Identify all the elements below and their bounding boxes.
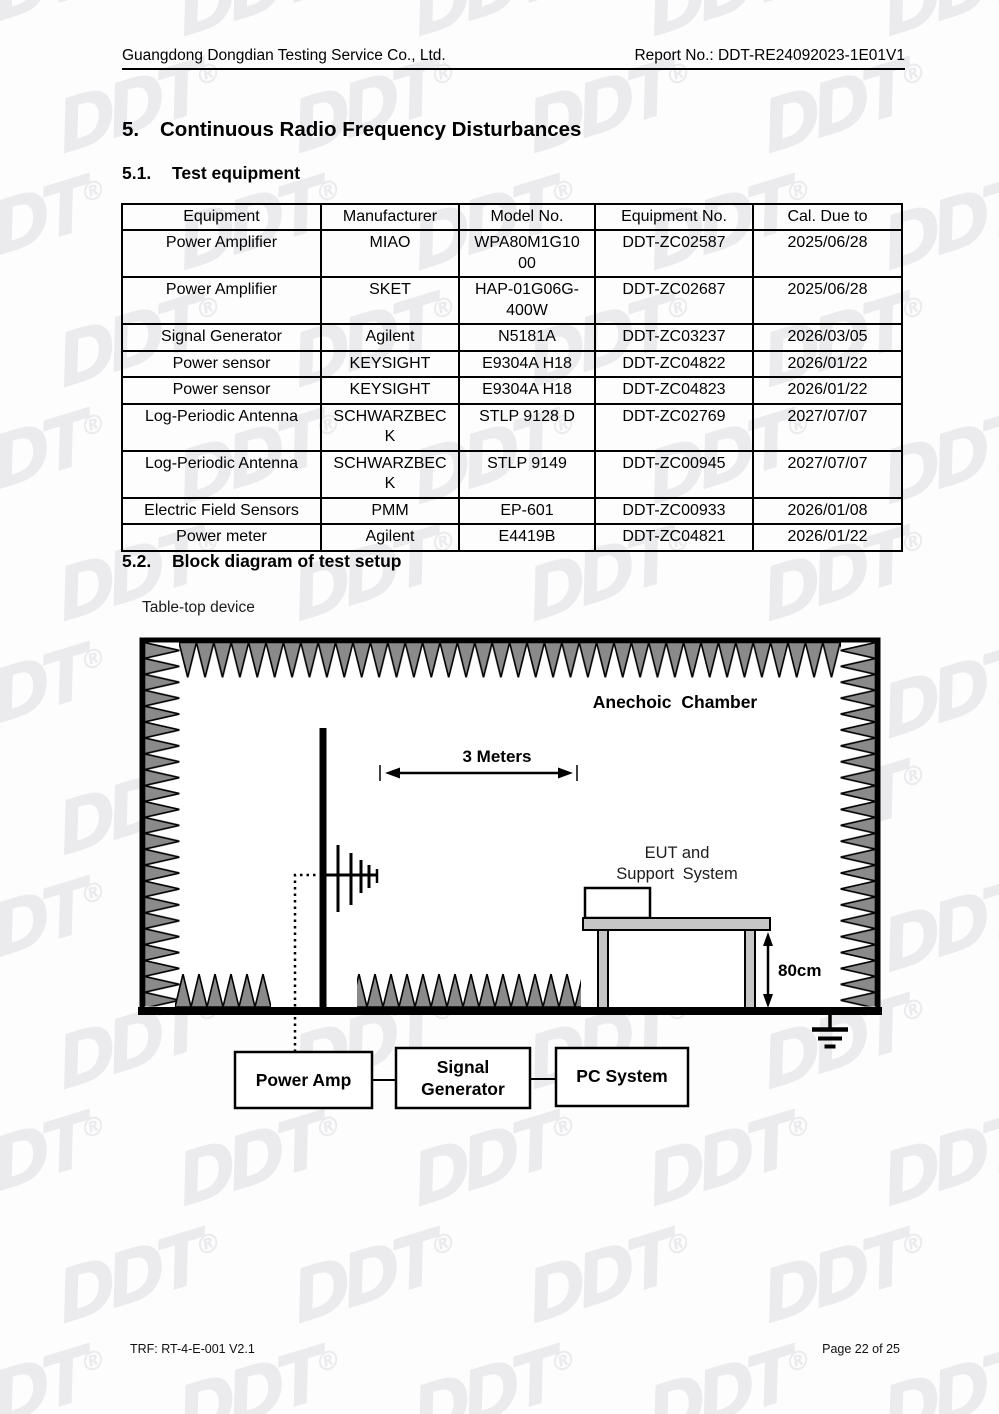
cell-cal-due: 2026/01/22 (753, 377, 902, 403)
section-5-2-title: Block diagram of test setup (172, 551, 402, 572)
col-header-equipment-no: Equipment No. (595, 204, 753, 230)
test-setup-diagram: Anechoic Chamber 3 Meters EUT and Suppor… (130, 636, 920, 1116)
ddt-watermark-logo: DDT® (0, 622, 114, 756)
cell-model: EP-601 (459, 498, 595, 524)
cell-equipment-no: DDT-ZC02769 (595, 404, 753, 451)
ddt-watermark-logo: DDT® (287, 1207, 463, 1341)
table-row: Log-Periodic Antenna SCHWARZBECK STLP 91… (122, 451, 902, 498)
page-header: Guangdong Dongdian Testing Service Co., … (122, 47, 905, 70)
col-header-model-no: Model No. (459, 204, 595, 230)
col-header-manufacturer: Manufacturer (321, 204, 459, 230)
cell-cal-due: 2026/01/22 (753, 351, 902, 377)
ddt-watermark-logo: DDT® (407, 1324, 583, 1414)
section-5-heading: 5. Continuous Radio Frequency Disturbanc… (122, 118, 581, 142)
diagram-svg: Anechoic Chamber 3 Meters EUT and Suppor… (130, 636, 920, 1116)
footer-page-number: Page 22 of 25 (822, 1342, 900, 1356)
page-footer: TRF: RT-4-E-001 V2.1 Page 22 of 25 (130, 1342, 900, 1356)
section-5-number: 5. (122, 118, 160, 142)
cell-cal-due: 2025/06/28 (753, 230, 902, 277)
cell-equipment-no: DDT-ZC03237 (595, 324, 753, 350)
cell-manufacturer: SKET (321, 277, 459, 324)
cell-equipment: Power sensor (122, 377, 321, 403)
test-table-leg (598, 930, 608, 1008)
cell-cal-due: 2027/07/07 (753, 451, 902, 498)
cell-model: WPA80M1G1000 (459, 230, 595, 277)
cell-equipment-no: DDT-ZC02587 (595, 230, 753, 277)
table-height-label: 80cm (778, 961, 821, 980)
pc-system-label: PC System (576, 1066, 667, 1086)
table-row: Signal Generator Agilent N5181A DDT-ZC03… (122, 324, 902, 350)
ddt-watermark-logo: DDT® (992, 1207, 999, 1341)
table-row: Power Amplifier MIAO WPA80M1G1000 DDT-ZC… (122, 230, 902, 277)
table-row: Power sensor KEYSIGHT E9304A H18 DDT-ZC0… (122, 351, 902, 377)
cell-cal-due: 2026/03/05 (753, 324, 902, 350)
ddt-watermark-logo: DDT® (0, 1090, 114, 1224)
ddt-watermark-logo: DDT® (642, 1324, 818, 1414)
cell-model: N5181A (459, 324, 595, 350)
cell-equipment-no: DDT-ZC04823 (595, 377, 753, 403)
cell-equipment: Electric Field Sensors (122, 498, 321, 524)
cell-equipment-no: DDT-ZC00945 (595, 451, 753, 498)
cell-manufacturer: MIAO (321, 230, 459, 277)
ddt-watermark-logo: DDT® (992, 973, 999, 1107)
cell-manufacturer: SCHWARZBECK (321, 451, 459, 498)
cell-equipment-no: DDT-ZC04822 (595, 351, 753, 377)
signal-generator-label-line2: Generator (421, 1079, 505, 1099)
cell-equipment: Signal Generator (122, 324, 321, 350)
section-5-1-number: 5.1. (122, 163, 172, 184)
cell-equipment: Power sensor (122, 351, 321, 377)
ddt-watermark-logo: DDT® (172, 1324, 348, 1414)
floor-absorbers-center (357, 974, 581, 1007)
cell-model: STLP 9149 (459, 451, 595, 498)
ddt-watermark-logo: DDT® (992, 505, 999, 639)
header-company: Guangdong Dongdian Testing Service Co., … (122, 47, 446, 65)
cell-model: E9304A H18 (459, 351, 595, 377)
cell-equipment: Power Amplifier (122, 277, 321, 324)
ddt-watermark-logo: DDT® (0, 154, 114, 288)
cell-manufacturer: KEYSIGHT (321, 377, 459, 403)
ddt-watermark-logo: DDT® (52, 1207, 228, 1341)
header-report-no: Report No.: DDT-RE24092023-1E01V1 (634, 47, 905, 65)
col-header-cal-due: Cal. Due to (753, 204, 902, 230)
ceiling-absorbers (179, 643, 841, 678)
right-wall-absorbers (841, 643, 876, 1007)
cell-manufacturer: Agilent (321, 324, 459, 350)
cell-model: E9304A H18 (459, 377, 595, 403)
ddt-watermark-logo: DDT® (992, 37, 999, 171)
cell-cal-due: 2027/07/07 (753, 404, 902, 451)
ddt-watermark-logo: DDT® (992, 739, 999, 873)
cell-manufacturer: PMM (321, 498, 459, 524)
eut-box (585, 888, 650, 918)
table-row: Log-Periodic Antenna SCHWARZBECK STLP 91… (122, 404, 902, 451)
table-row: Electric Field Sensors PMM EP-601 DDT-ZC… (122, 498, 902, 524)
cell-model: E4419B (459, 524, 595, 550)
test-table-top (583, 918, 770, 930)
cell-model: HAP-01G06G-400W (459, 277, 595, 324)
cell-cal-due: 2025/06/28 (753, 277, 902, 324)
cell-manufacturer: SCHWARZBECK (321, 404, 459, 451)
col-header-equipment: Equipment (122, 204, 321, 230)
cell-equipment: Power meter (122, 524, 321, 550)
ddt-watermark-logo: DDT® (0, 856, 114, 990)
table-row: Power meter Agilent E4419B DDT-ZC04821 2… (122, 524, 902, 550)
table-header-row: Equipment Manufacturer Model No. Equipme… (122, 204, 902, 230)
device-type-label: Table-top device (142, 599, 255, 617)
cell-cal-due: 2026/01/08 (753, 498, 902, 524)
left-wall-absorbers (145, 643, 180, 1007)
ddt-watermark-logo: DDT® (522, 1207, 698, 1341)
report-page: DDT®DDT®DDT®DDT®DDT®DDT®DDT®DDT®DDT®DDT®… (0, 0, 999, 1414)
eut-label-line1: EUT and (645, 844, 710, 862)
ddt-watermark-logo: DDT® (992, 271, 999, 405)
footer-trf-number: TRF: RT-4-E-001 V2.1 (130, 1342, 255, 1356)
table-row: Power Amplifier SKET HAP-01G06G-400W DDT… (122, 277, 902, 324)
anechoic-chamber-label: Anechoic Chamber (593, 692, 758, 712)
power-amp-label: Power Amp (256, 1070, 352, 1090)
eut-label-line2: Support System (616, 865, 737, 883)
test-table-leg (745, 930, 755, 1008)
section-5-title: Continuous Radio Frequency Disturbances (160, 118, 581, 142)
cell-equipment: Log-Periodic Antenna (122, 404, 321, 451)
ddt-watermark-logo: DDT® (757, 1207, 933, 1341)
ddt-watermark-logo: DDT® (0, 0, 114, 54)
cell-model: STLP 9128 D (459, 404, 595, 451)
table-row: Power sensor KEYSIGHT E9304A H18 DDT-ZC0… (122, 377, 902, 403)
section-5-1-title: Test equipment (172, 163, 300, 184)
signal-generator-label-line1: Signal (437, 1057, 490, 1077)
ddt-watermark-logo: DDT® (0, 1324, 114, 1414)
cell-equipment: Power Amplifier (122, 230, 321, 277)
cell-equipment-no: DDT-ZC00933 (595, 498, 753, 524)
cell-equipment-no: DDT-ZC04821 (595, 524, 753, 550)
cell-manufacturer: KEYSIGHT (321, 351, 459, 377)
cell-cal-due: 2026/01/22 (753, 524, 902, 550)
section-5-2-heading: 5.2. Block diagram of test setup (122, 551, 402, 572)
test-equipment-table: Equipment Manufacturer Model No. Equipme… (121, 203, 903, 552)
cell-equipment-no: DDT-ZC02687 (595, 277, 753, 324)
ddt-watermark-logo: DDT® (877, 1324, 999, 1414)
cell-manufacturer: Agilent (321, 524, 459, 550)
floor-absorbers-left (175, 974, 271, 1007)
distance-label: 3 Meters (463, 747, 532, 766)
ddt-watermark-logo: DDT® (0, 388, 114, 522)
section-5-1-heading: 5.1. Test equipment (122, 163, 300, 184)
section-5-2-number: 5.2. (122, 551, 172, 572)
cell-equipment: Log-Periodic Antenna (122, 451, 321, 498)
